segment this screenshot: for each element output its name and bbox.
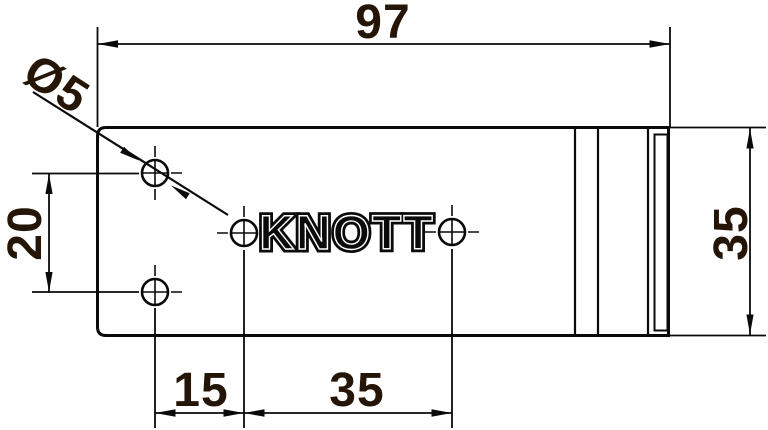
arrowhead-right: [650, 40, 671, 48]
leader-arrowhead-upper: [120, 147, 139, 161]
arrowhead-up: [45, 174, 52, 194]
arrowhead-right-out: [432, 409, 453, 417]
drawing-svg: KNOTT KNOTT 97 Ø5 20 35: [0, 0, 768, 430]
arrowhead-up: [746, 129, 753, 149]
hole-bottom-left-centerlines: [142, 265, 182, 305]
technical-drawing-canvas: KNOTT KNOTT 97 Ø5 20 35: [0, 0, 768, 430]
dim-label-side-height: 35: [705, 205, 758, 260]
dimension-side-height: 35: [669, 128, 767, 336]
dim-label-hole-diameter: Ø5: [14, 44, 98, 124]
dim-label-bottom-offset-left: 15: [173, 364, 228, 417]
arrowhead-down: [45, 272, 52, 292]
dimension-bottom-offsets: 15 35: [155, 249, 452, 428]
arrowhead-down: [746, 315, 753, 335]
brand-engraving: KNOTT KNOTT: [259, 207, 434, 260]
brand-text-inline-highlight: KNOTT: [259, 207, 434, 260]
arrowhead-left: [98, 40, 119, 48]
rolled-edge-strip: [655, 135, 668, 331]
arrowhead-mid-right: [244, 409, 265, 417]
dimension-hole-vertical-spacing: 20: [0, 174, 139, 293]
dim-label-hole-vertical-spacing: 20: [0, 205, 52, 260]
dimension-overall-width: 97: [98, 0, 671, 127]
dim-label-bottom-offset-right: 35: [329, 364, 384, 417]
dim-label-overall-width: 97: [355, 0, 410, 49]
leader-arrowhead-lower: [171, 186, 190, 200]
